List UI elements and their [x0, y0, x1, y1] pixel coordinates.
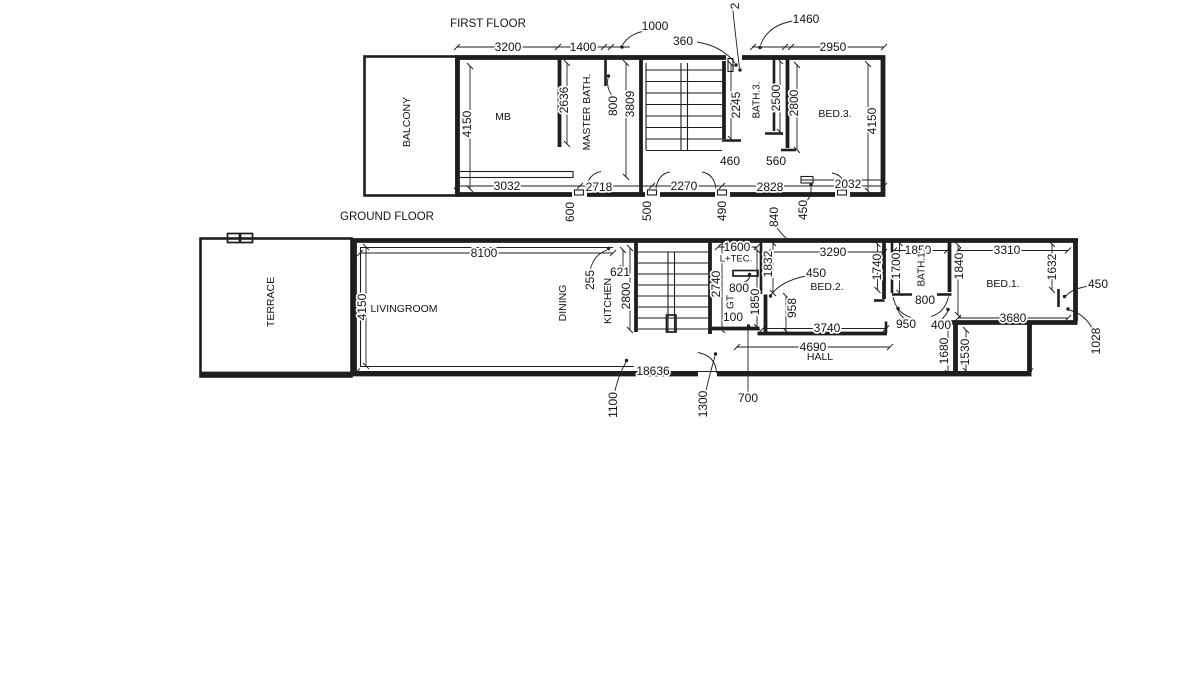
dim-1100: 1100 [606, 392, 620, 418]
dim-2636: 2636 [557, 86, 571, 113]
dim-800-ff: 800 [606, 96, 620, 116]
dim-621: 621 [610, 265, 630, 279]
dim-3740: 3740 [814, 321, 841, 335]
room-bed2: BED.2. [810, 281, 843, 293]
room-bed1: BED.1. [986, 278, 1019, 290]
dim-460: 460 [720, 154, 740, 168]
dim-4150-right: 4150 [865, 107, 879, 134]
first-floor-title: FIRST FLOOR [450, 18, 526, 30]
dim-1840: 1840 [952, 252, 966, 279]
dim-450-ff: 450 [796, 200, 810, 220]
dim-2800-gf: 2800 [619, 282, 633, 309]
dim-2032: 2032 [835, 177, 862, 191]
room-terrace: TERRACE [265, 277, 277, 327]
dim-2245: 2245 [729, 91, 743, 118]
dim-3680: 3680 [1000, 311, 1027, 325]
closet [459, 172, 573, 178]
dim-3809: 3809 [623, 90, 637, 117]
dim-3290: 3290 [820, 245, 847, 259]
dim-1832: 1832 [761, 250, 775, 277]
first-floor-stairs [646, 63, 722, 151]
room-kitchen: KITCHEN [602, 278, 614, 324]
dim-1850-gt: 1850 [748, 288, 762, 315]
dim-450-bed1: 450 [1088, 277, 1108, 291]
ground-floor-stairs [638, 252, 708, 332]
dim-840: 840 [767, 207, 781, 227]
room-livingroom: LIVINGROOM [370, 303, 437, 315]
dim-2270: 2270 [671, 179, 698, 193]
dim-3310: 3310 [994, 243, 1021, 257]
dim-360: 360 [673, 34, 693, 48]
dim-1028: 1028 [1089, 327, 1103, 354]
dim-500: 500 [640, 201, 654, 221]
floor-plan-drawing: FIRST FLOOR320014001000360214602950BALCO… [0, 0, 1200, 676]
dim-255: 255 [583, 270, 597, 290]
room-balcony: BALCONY [401, 97, 413, 147]
dim-2800-ff: 2800 [787, 89, 801, 116]
floor-plan-page: FIRST FLOOR320014001000360214602950BALCO… [0, 0, 1200, 676]
room-bed3: BED.3. [818, 108, 851, 120]
dim-2-partial: 2 [728, 2, 742, 9]
entrance-door-arc [698, 353, 717, 374]
first-floor-walls [458, 53, 884, 199]
room-bath3: BATH.3. [752, 81, 763, 118]
room-dining: DINING [557, 285, 569, 322]
dim-700: 700 [738, 391, 758, 405]
ground-floor-title: GROUND FLOOR [340, 211, 434, 223]
dim-18636: 18636 [636, 364, 670, 378]
room-gt: GT [726, 295, 737, 309]
dim-4150-gf: 4150 [355, 293, 369, 320]
dim-100: 100 [723, 310, 743, 324]
dim-2740: 2740 [709, 270, 723, 297]
dim-958: 958 [785, 298, 799, 318]
first-floor-plan: FIRST FLOOR320014001000360214602950BALCO… [365, 2, 888, 242]
dim-3032: 3032 [494, 179, 521, 193]
dim-1460: 1460 [793, 12, 820, 26]
dim-400: 400 [931, 318, 951, 332]
dim-490: 490 [715, 201, 729, 221]
dim-600: 600 [563, 202, 577, 222]
room-master-bath: MASTER BATH. [581, 74, 593, 151]
dim-1600: 1600 [724, 240, 751, 254]
dim-1530: 1530 [958, 338, 972, 365]
dim-800-bath1: 800 [915, 293, 935, 307]
dim-950: 950 [896, 317, 916, 331]
dim-1700: 1700 [889, 252, 903, 279]
dim-1632: 1632 [1045, 253, 1059, 280]
dim-1000: 1000 [642, 19, 669, 33]
dim-2828: 2828 [757, 180, 784, 194]
dim-450-bed2: 450 [806, 266, 826, 280]
room-ltec: L+TEC. [720, 254, 752, 265]
dim-4150-left: 4150 [460, 110, 474, 137]
room-hall: HALL [807, 351, 833, 363]
dim-1400: 1400 [570, 40, 597, 54]
shelf [733, 271, 758, 277]
dim-1740: 1740 [870, 253, 884, 280]
dim-1680: 1680 [937, 337, 951, 364]
dim-8100: 8100 [471, 246, 498, 260]
dim-2500: 2500 [769, 84, 783, 111]
ground-floor-plan: GROUND FLOORTERRACE4150LIVINGROOM8100DIN… [200, 211, 1108, 418]
dim-3200: 3200 [495, 40, 522, 54]
room-bath1: BATH.1. [917, 249, 928, 286]
dim-2718: 2718 [586, 180, 613, 194]
dim-560: 560 [766, 154, 786, 168]
dim-800-gt: 800 [729, 281, 749, 295]
dim-2950: 2950 [820, 40, 847, 54]
dim-1300: 1300 [696, 390, 710, 417]
room-mb: MB [495, 111, 511, 123]
